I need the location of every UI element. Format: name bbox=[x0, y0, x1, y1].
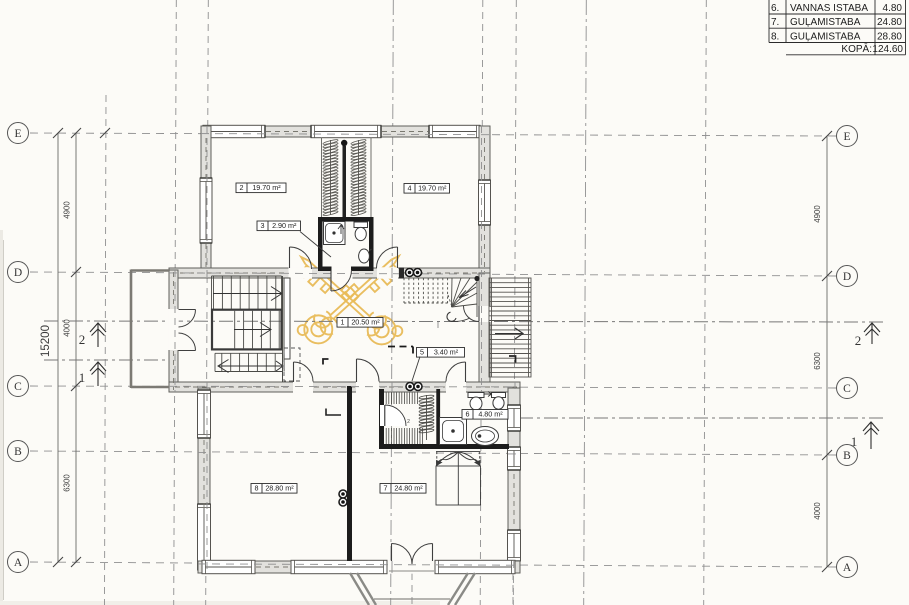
svg-text:19.70 m²: 19.70 m² bbox=[418, 184, 447, 193]
svg-text:3.40 m²: 3.40 m² bbox=[434, 348, 459, 357]
svg-text:4: 4 bbox=[408, 184, 412, 193]
svg-text:VANNAS ISTABA: VANNAS ISTABA bbox=[790, 3, 868, 14]
svg-text:4000: 4000 bbox=[813, 502, 822, 520]
svg-text:KOPĀ:: KOPĀ: bbox=[841, 43, 872, 55]
svg-text:D: D bbox=[843, 271, 851, 283]
svg-text:2: 2 bbox=[407, 419, 410, 425]
svg-text:A: A bbox=[843, 562, 852, 574]
svg-text:C: C bbox=[14, 381, 22, 393]
svg-text:6300: 6300 bbox=[813, 352, 822, 370]
svg-text:7.: 7. bbox=[771, 17, 779, 28]
svg-text:8.: 8. bbox=[771, 31, 779, 42]
svg-text:D: D bbox=[14, 267, 22, 279]
svg-text:4900: 4900 bbox=[63, 201, 72, 219]
svg-text:4.80: 4.80 bbox=[883, 3, 903, 14]
svg-text:GUĻAMISTABA: GUĻAMISTABA bbox=[790, 17, 861, 28]
svg-text:C: C bbox=[843, 383, 851, 395]
svg-text:E: E bbox=[14, 128, 21, 140]
svg-text:4.80 m²: 4.80 m² bbox=[478, 410, 503, 419]
svg-text:15200: 15200 bbox=[40, 325, 52, 357]
svg-text:6.: 6. bbox=[771, 3, 779, 14]
svg-text:GUĻAMISTABA: GUĻAMISTABA bbox=[790, 31, 861, 42]
svg-text:2: 2 bbox=[855, 333, 862, 348]
svg-text:24.80: 24.80 bbox=[877, 17, 902, 28]
svg-text:1: 1 bbox=[79, 370, 86, 385]
svg-text:A: A bbox=[14, 557, 23, 569]
svg-text:1: 1 bbox=[851, 434, 858, 449]
svg-text:124.60: 124.60 bbox=[872, 44, 903, 55]
svg-text:8: 8 bbox=[255, 484, 259, 493]
svg-text:3: 3 bbox=[261, 221, 265, 230]
svg-text:6: 6 bbox=[466, 410, 470, 419]
svg-text:2: 2 bbox=[240, 183, 244, 192]
svg-text:E: E bbox=[843, 131, 850, 143]
svg-text:B: B bbox=[14, 446, 22, 458]
svg-text:20.50 m²: 20.50 m² bbox=[351, 318, 380, 327]
svg-text:2.90 m²: 2.90 m² bbox=[272, 221, 297, 230]
svg-text:19.70 m²: 19.70 m² bbox=[252, 183, 281, 192]
svg-text:4900: 4900 bbox=[813, 205, 822, 223]
svg-text:28.80 m²: 28.80 m² bbox=[265, 484, 294, 493]
svg-text:2: 2 bbox=[79, 332, 86, 347]
svg-text:5: 5 bbox=[420, 348, 424, 357]
svg-text:28.80: 28.80 bbox=[877, 31, 902, 42]
svg-text:1: 1 bbox=[341, 318, 345, 327]
svg-text:B: B bbox=[843, 450, 851, 462]
svg-text:6300: 6300 bbox=[63, 474, 72, 492]
svg-text:7: 7 bbox=[384, 484, 388, 493]
svg-text:24.80 m²: 24.80 m² bbox=[394, 484, 423, 493]
